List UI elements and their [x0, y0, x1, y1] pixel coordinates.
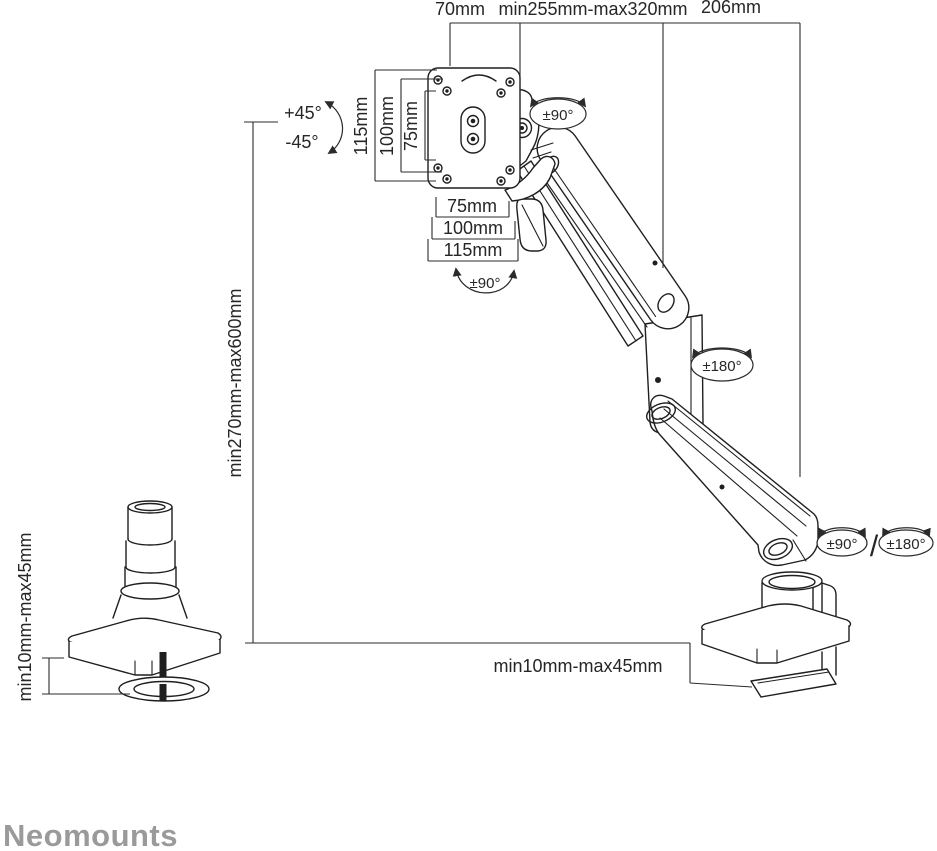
rotation-label-base-a: ±90° — [827, 536, 858, 553]
lower-arm — [644, 395, 818, 565]
rotation-label-tilt-down: -45° — [285, 132, 318, 152]
rotation-slash: / — [870, 530, 879, 563]
base-plate-front — [702, 626, 849, 663]
lower-arm-screw — [720, 485, 725, 490]
dim-label-grommet-clamp-range: min10mm-max45mm — [15, 532, 35, 701]
rotation-label-head-swivel: ±90° — [543, 107, 574, 124]
dim-label-vesa-h115: 115mm — [444, 240, 503, 260]
dim-label-vesa-h100: 100mm — [443, 218, 503, 238]
grommet-collar — [121, 583, 179, 599]
dim-label-height-range: min270mm-max600mm — [225, 288, 245, 477]
dim-label-rear-arm: 206mm — [701, 0, 761, 17]
rotation-label-tilt-up: +45° — [284, 103, 322, 123]
dim-label-desk-clamp-range: min10mm-max45mm — [493, 656, 662, 676]
base-pole-top — [762, 572, 822, 590]
neomounts-logo: Neomounts — [3, 818, 178, 851]
dim-label-vesa-v115: 115mm — [351, 97, 371, 156]
monitor-arm — [428, 68, 851, 697]
dim-label-vesa-offset: 70mm — [435, 0, 485, 19]
rotation-annotations: +45° -45° ±90° ±90° ±180° ±90° / ±180° — [284, 98, 933, 563]
dim-label-vesa-v75: 75mm — [401, 101, 421, 151]
monitor-arm-diagram: 70mm min255mm-max320mm 206mm min270mm-ma… — [0, 0, 937, 851]
grommet-pole-band1 — [128, 539, 172, 545]
vesa-plate — [428, 68, 520, 188]
rotation-label-vesa-rotate: ±90° — [470, 275, 501, 292]
rotation-label-base-b: ±180° — [886, 536, 925, 553]
elbow-screw — [655, 377, 661, 383]
dim-label-vesa-h75: 75mm — [447, 196, 497, 216]
desk-clamp-base — [702, 572, 851, 697]
upper-arm-screw — [653, 261, 658, 266]
dim-label-arm-extension: min255mm-max320mm — [498, 0, 687, 19]
tilt-arrow-icon — [326, 102, 343, 153]
grommet-plate-front — [69, 640, 220, 675]
dim-label-vesa-v100: 100mm — [377, 96, 397, 156]
grommet-pole-mid — [126, 541, 175, 573]
grommet-base — [68, 501, 221, 701]
vesa-keyhole-bottom-dot — [471, 137, 476, 142]
vesa-keyhole-top-dot — [471, 119, 476, 124]
rotation-label-elbow: ±180° — [702, 358, 741, 375]
diagram-page: 70mm min255mm-max320mm 206mm min270mm-ma… — [0, 0, 937, 851]
